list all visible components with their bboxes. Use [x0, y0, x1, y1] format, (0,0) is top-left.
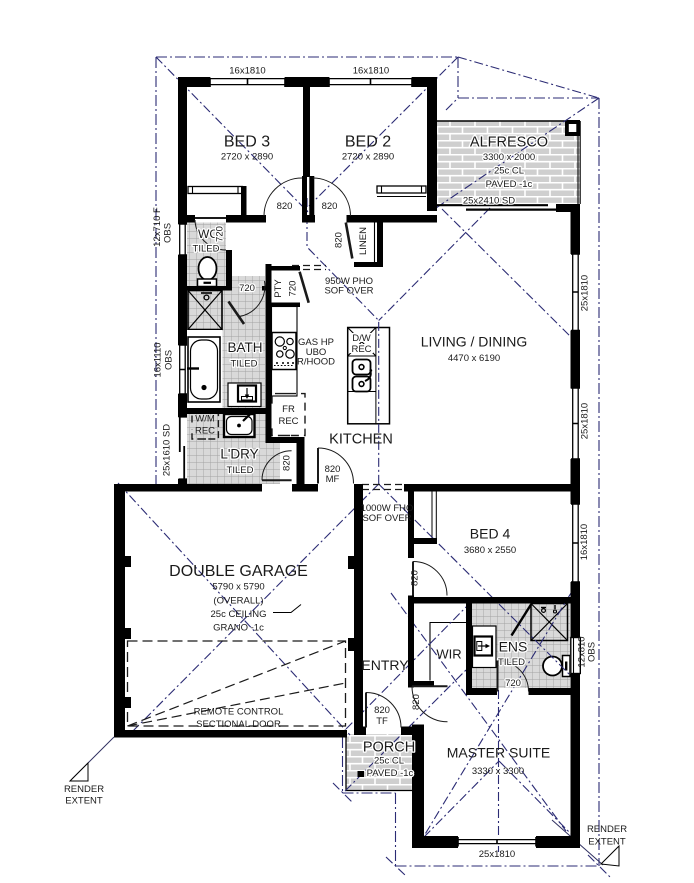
- svg-text:ALFRESCO: ALFRESCO: [470, 135, 548, 151]
- svg-text:LINEN: LINEN: [358, 227, 369, 255]
- svg-text:720: 720: [505, 678, 521, 689]
- svg-text:BED 2: BED 2: [345, 134, 391, 151]
- svg-text:25c CL: 25c CL: [494, 166, 524, 177]
- svg-text:820: 820: [282, 455, 293, 471]
- svg-text:EXTENT: EXTENT: [65, 796, 103, 807]
- svg-text:ENTRY: ENTRY: [361, 657, 409, 673]
- svg-text:BED 3: BED 3: [224, 134, 270, 151]
- svg-text:W/M: W/M: [195, 414, 215, 425]
- svg-text:820: 820: [334, 232, 345, 248]
- svg-text:TILED: TILED: [193, 244, 220, 255]
- svg-text:OBS: OBS: [587, 642, 598, 662]
- svg-text:TILED: TILED: [231, 359, 258, 370]
- svg-text:PAVED -1c: PAVED -1c: [486, 179, 533, 190]
- svg-text:3680 x 2550: 3680 x 2550: [464, 545, 516, 556]
- svg-text:720: 720: [215, 226, 226, 242]
- svg-text:SECTIONAL DOOR: SECTIONAL DOOR: [196, 719, 281, 730]
- svg-text:KITCHEN: KITCHEN: [329, 432, 393, 448]
- svg-text:820: 820: [374, 705, 390, 716]
- svg-text:5790 x 5790: 5790 x 5790: [212, 582, 264, 593]
- svg-text:16x1810: 16x1810: [229, 66, 265, 77]
- svg-text:720: 720: [288, 281, 299, 297]
- svg-text:R/HOOD: R/HOOD: [297, 357, 335, 368]
- svg-text:16x1810: 16x1810: [353, 66, 389, 77]
- svg-text:SOF OVER: SOF OVER: [324, 286, 373, 297]
- svg-text:16x1110: 16x1110: [153, 342, 164, 377]
- svg-text:REMOTE CONTROL: REMOTE CONTROL: [194, 707, 284, 718]
- svg-text:OBS: OBS: [163, 223, 174, 243]
- svg-text:PAVED -1c: PAVED -1c: [367, 768, 414, 779]
- svg-text:OBS: OBS: [164, 350, 175, 370]
- svg-text:25c CEILING: 25c CEILING: [211, 609, 267, 620]
- svg-text:720: 720: [239, 283, 255, 294]
- svg-text:820: 820: [277, 201, 293, 212]
- svg-text:820: 820: [411, 694, 422, 710]
- svg-text:GRANO -1c: GRANO -1c: [213, 623, 264, 634]
- svg-text:LIVING / DINING: LIVING / DINING: [421, 334, 528, 350]
- svg-text:2720 x 2890: 2720 x 2890: [342, 152, 394, 163]
- svg-text:25x1610 SD: 25x1610 SD: [162, 424, 173, 476]
- svg-text:2720 x 2890: 2720 x 2890: [221, 152, 273, 163]
- svg-text:PORCH: PORCH: [363, 740, 415, 756]
- svg-text:RENDER: RENDER: [587, 824, 627, 835]
- svg-text:ENS: ENS: [499, 639, 528, 655]
- svg-text:TILED: TILED: [498, 657, 525, 668]
- svg-text:MF: MF: [326, 474, 340, 485]
- svg-text:3330 x 3300: 3330 x 3300: [472, 766, 524, 777]
- svg-text:REC: REC: [195, 426, 215, 437]
- svg-text:25x1810: 25x1810: [580, 275, 591, 311]
- svg-text:FR: FR: [282, 404, 295, 415]
- svg-text:3300 x 2000: 3300 x 2000: [483, 152, 535, 163]
- svg-text:DOUBLE GARAGE: DOUBLE GARAGE: [169, 563, 308, 580]
- svg-text:BED 4: BED 4: [470, 526, 511, 542]
- svg-text:25c CL: 25c CL: [374, 756, 404, 767]
- svg-text:(OVERALL): (OVERALL): [213, 596, 263, 607]
- svg-text:16x1810: 16x1810: [579, 524, 590, 560]
- svg-text:4470 x 6190: 4470 x 6190: [448, 353, 500, 364]
- svg-text:MASTER SUITE: MASTER SUITE: [447, 745, 550, 761]
- svg-text:BATH: BATH: [227, 340, 262, 355]
- svg-text:EXTENT: EXTENT: [588, 837, 626, 848]
- svg-text:L'DRY: L'DRY: [220, 447, 258, 462]
- svg-text:25x2410 SD: 25x2410 SD: [463, 196, 515, 207]
- svg-text:TF: TF: [376, 716, 388, 727]
- svg-text:12x710 F: 12x710 F: [152, 207, 163, 247]
- svg-text:SOF OVER: SOF OVER: [362, 513, 411, 524]
- svg-text:WIR: WIR: [436, 647, 461, 662]
- svg-text:820: 820: [410, 570, 421, 586]
- svg-text:REC: REC: [278, 416, 298, 427]
- svg-text:820: 820: [322, 201, 338, 212]
- svg-text:REC: REC: [351, 344, 371, 355]
- svg-text:25x1810: 25x1810: [479, 849, 515, 860]
- svg-text:TILED: TILED: [227, 465, 254, 476]
- svg-text:25x1810: 25x1810: [580, 403, 591, 439]
- svg-text:D/W: D/W: [352, 333, 371, 344]
- svg-text:RENDER: RENDER: [64, 784, 104, 795]
- svg-text:PTY: PTY: [273, 279, 284, 298]
